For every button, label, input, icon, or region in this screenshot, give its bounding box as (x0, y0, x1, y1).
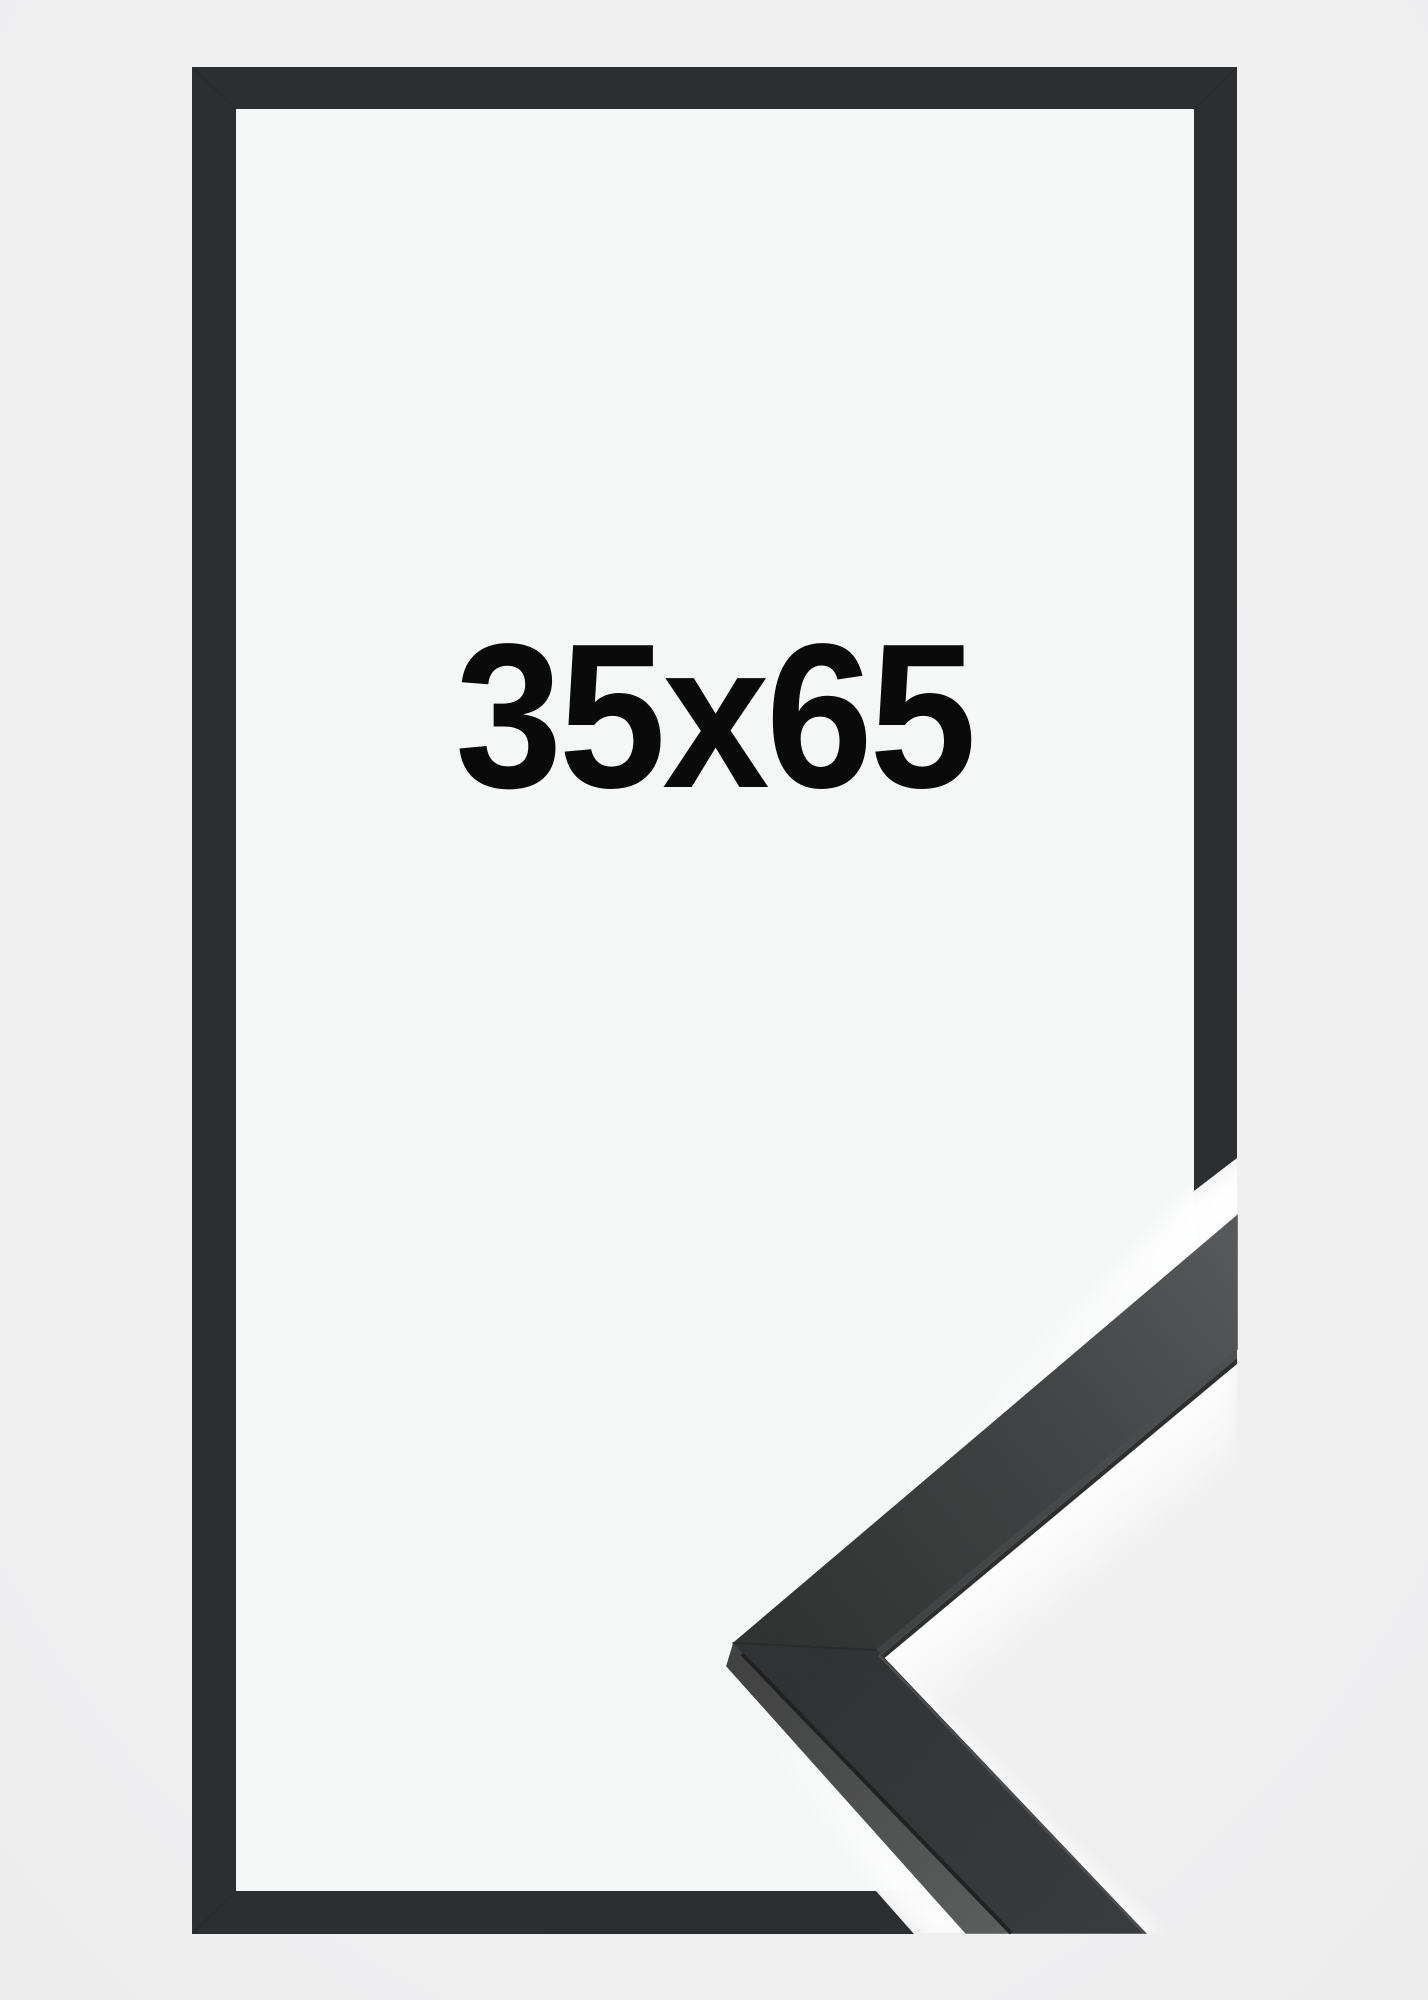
svg-text:35x65: 35x65 (455, 601, 973, 831)
